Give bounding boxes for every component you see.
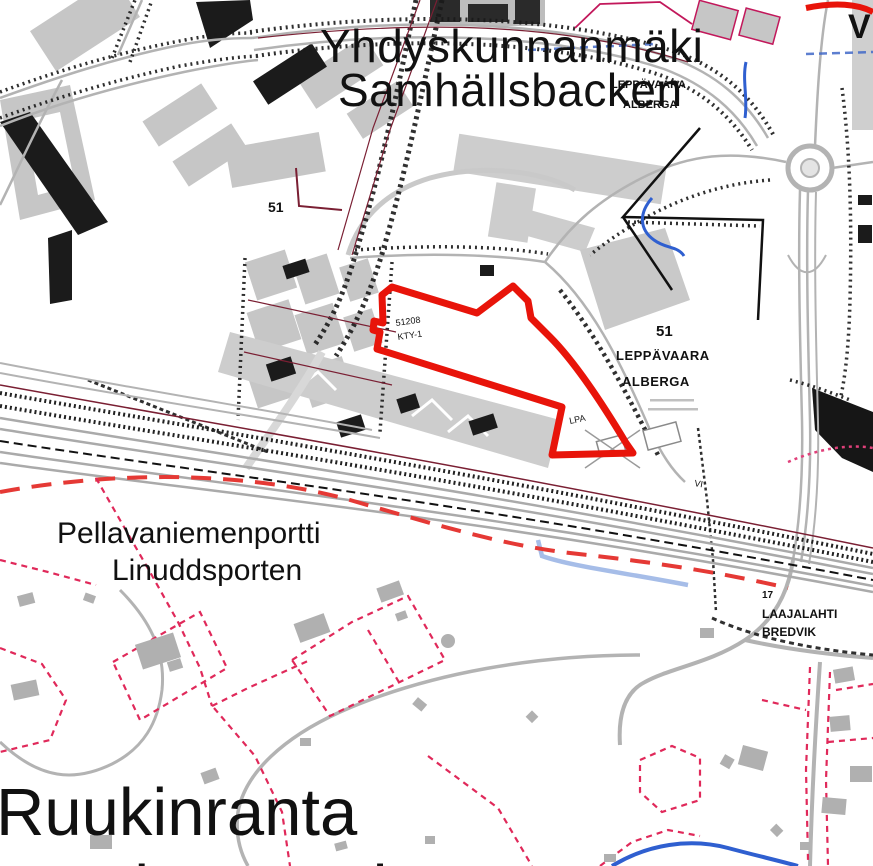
- label-gate-fi: Pellavaniemenportti: [57, 517, 320, 550]
- label-shore-fi: Ruukinranta: [0, 775, 358, 850]
- label-bay-number: 17: [762, 590, 774, 601]
- label-district-small-fi: LEPPÄVAARA: [611, 78, 686, 91]
- stream-vertical: [745, 62, 746, 118]
- map-svg: Yhdyskunnanmäki Samhällsbacken LEPPÄVAAR…: [0, 0, 873, 866]
- label-shore-sv-clipped: Bruksstranden: [30, 852, 462, 866]
- label-gate-sv: Linuddsporten: [112, 554, 302, 587]
- label-floors-code: VI: [694, 478, 704, 489]
- label-district-sv: ALBERGA: [622, 374, 690, 389]
- label-district-number: 51: [656, 323, 673, 340]
- label-district-small-sv: ALBERGA: [623, 99, 677, 111]
- roundabout: [788, 146, 832, 190]
- label-district-fi: LEPPÄVAARA: [616, 348, 710, 363]
- label-corner-letter: V: [848, 8, 871, 46]
- map-canvas[interactable]: Yhdyskunnanmäki Samhällsbacken LEPPÄVAAR…: [0, 0, 873, 866]
- label-bay-fi: LAAJALAHTI: [762, 607, 837, 621]
- label-block-number: 51: [268, 199, 284, 215]
- label-bay-sv: BREDVIK: [762, 625, 816, 639]
